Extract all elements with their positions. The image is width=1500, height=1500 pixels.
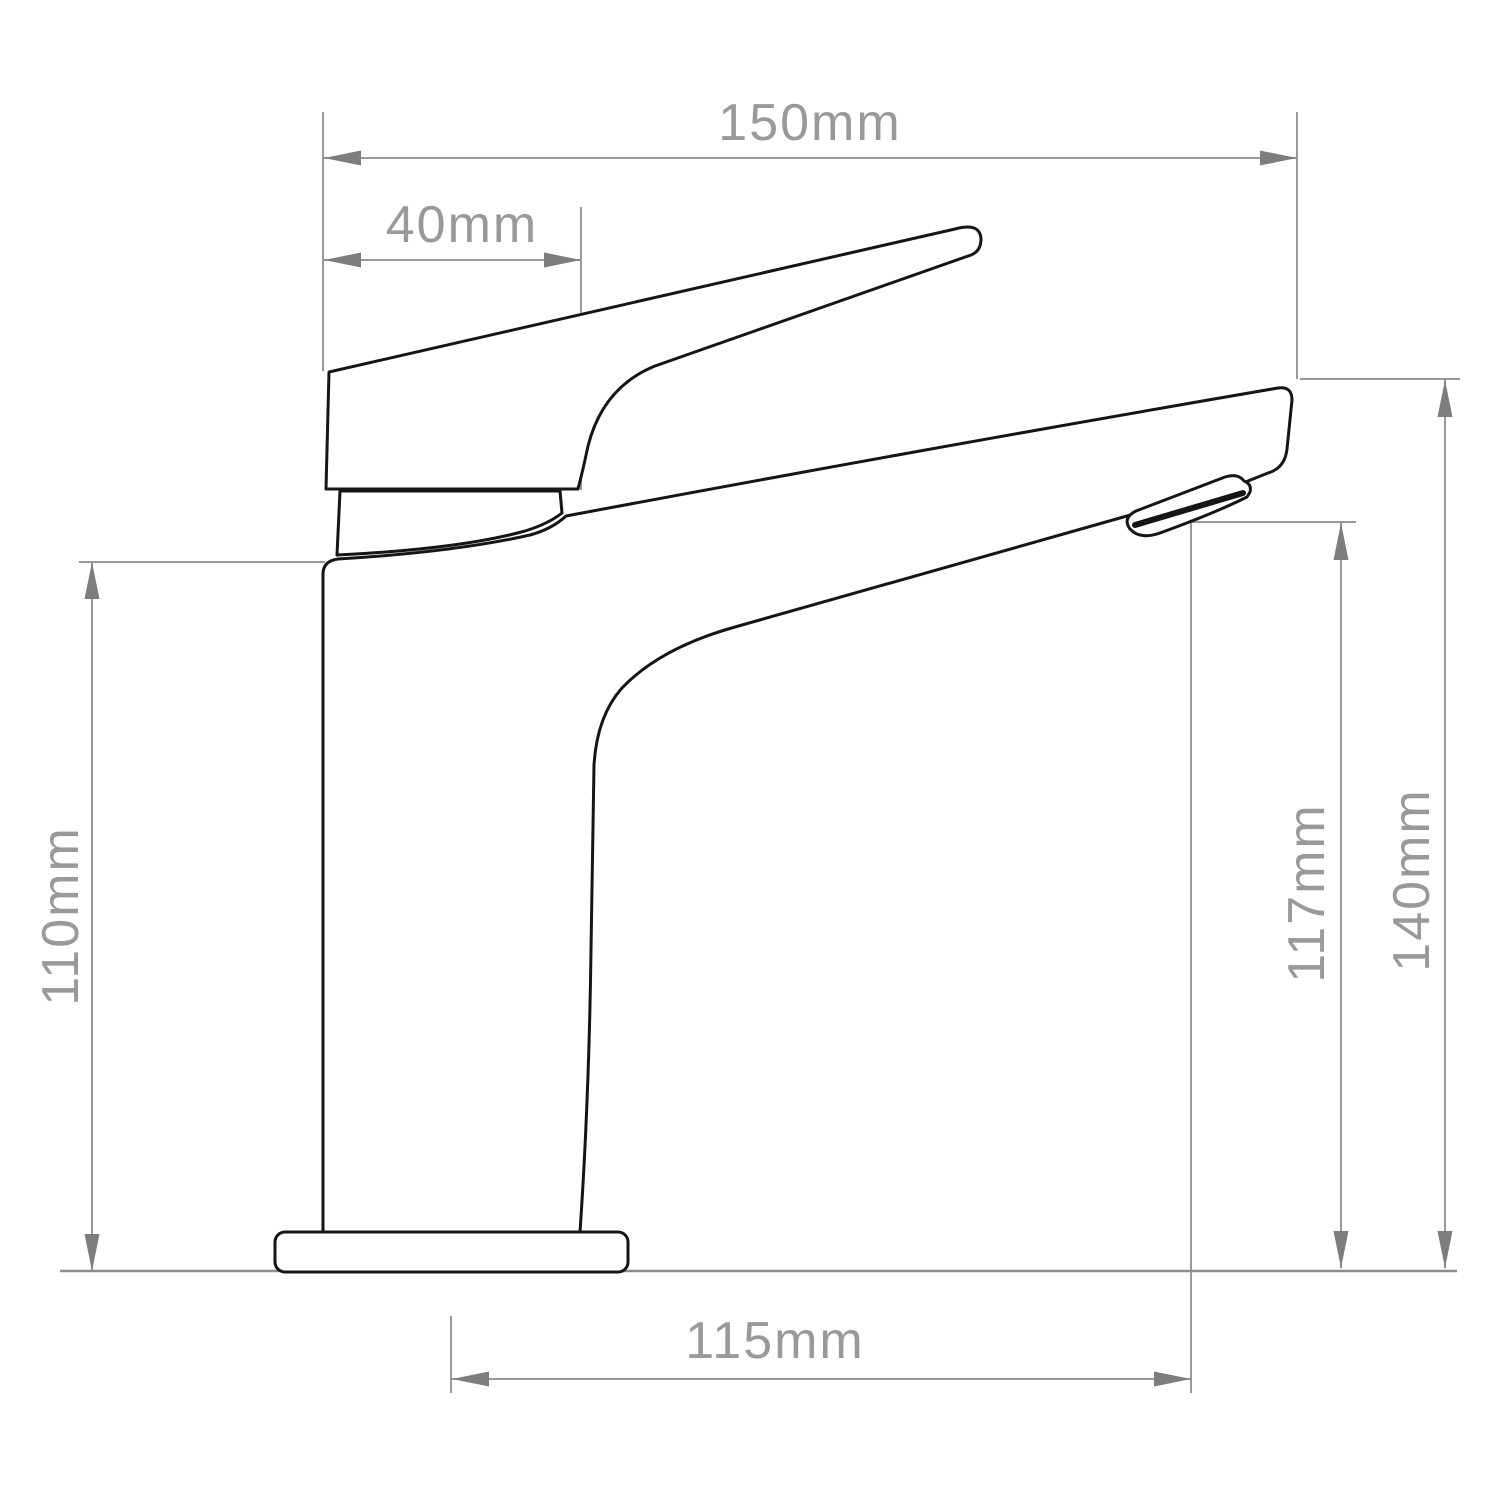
spout-aerator bbox=[1127, 476, 1250, 536]
arrowhead-down bbox=[1334, 1231, 1349, 1268]
dim-label-body-height: 110mm bbox=[32, 826, 90, 1006]
arrowhead-left bbox=[452, 1372, 489, 1387]
arrowhead-right bbox=[1260, 151, 1297, 166]
dim-label-overall-height: 140mm bbox=[1383, 788, 1441, 971]
arrowhead-right bbox=[1154, 1372, 1191, 1387]
dim-label-handle-offset: 40mm bbox=[386, 196, 538, 254]
dimension-spout-reach: 115mm bbox=[452, 1312, 1191, 1387]
arrowhead-up bbox=[1334, 523, 1349, 560]
arrowhead-up bbox=[1438, 380, 1453, 417]
faucet-technical-drawing: 150mm 40mm 110mm 117mm 140mm 115mm bbox=[0, 0, 1500, 1500]
base-plate bbox=[275, 1232, 628, 1272]
dimension-handle-offset: 40mm bbox=[324, 196, 581, 268]
arrowhead-down bbox=[85, 1234, 100, 1271]
faucet-spout-underside bbox=[580, 514, 1134, 1232]
dim-label-outlet-height: 117mm bbox=[1278, 803, 1336, 983]
dimension-outlet-height: 117mm bbox=[1278, 523, 1348, 1268]
cartridge-collar bbox=[337, 491, 562, 555]
technical-drawing-canvas: 150mm 40mm 110mm 117mm 140mm 115mm bbox=[0, 0, 1500, 1500]
arrowhead-left bbox=[324, 151, 361, 166]
arrowhead-up bbox=[85, 562, 100, 599]
dimension-overall-height: 140mm bbox=[1383, 380, 1452, 1268]
arrowhead-right bbox=[544, 253, 581, 268]
arrowhead-left bbox=[324, 253, 361, 268]
arrowhead-down bbox=[1438, 1231, 1453, 1268]
lever-handle bbox=[326, 227, 981, 489]
dimension-overall-width: 150mm bbox=[324, 94, 1297, 166]
dim-label-overall-width: 150mm bbox=[718, 94, 901, 152]
dim-label-spout-reach: 115mm bbox=[685, 1312, 865, 1370]
dimension-body-height: 110mm bbox=[32, 562, 99, 1271]
faucet-outline bbox=[275, 227, 1292, 1272]
